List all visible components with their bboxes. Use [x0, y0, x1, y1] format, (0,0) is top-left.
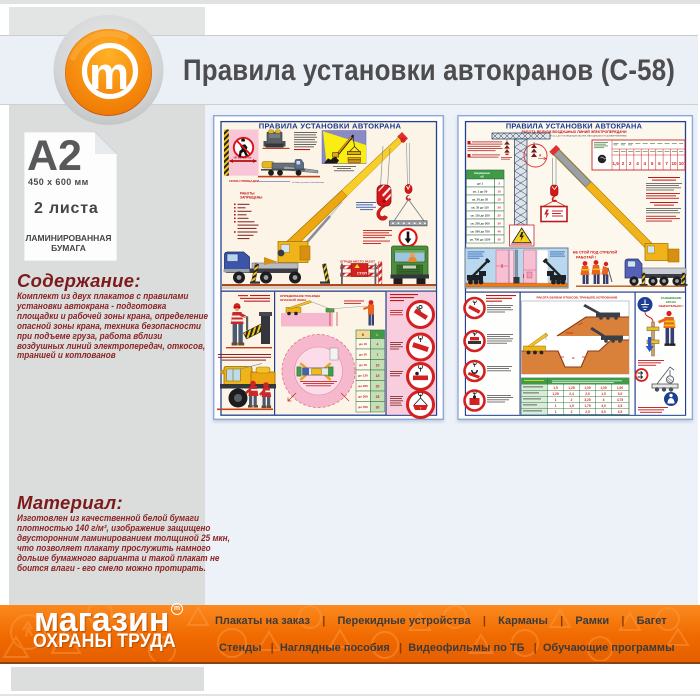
svg-text:до 120: до 120: [358, 374, 368, 378]
svg-text:ЗАПРЕЩЕНЫ: ЗАПРЕЩЕНЫ: [240, 196, 262, 200]
svg-text:1,00: 1,00: [600, 386, 606, 390]
svg-text:2,4: 2,4: [569, 392, 574, 396]
svg-text:1,25: 1,25: [552, 392, 558, 396]
svg-text:2: 2: [571, 410, 573, 414]
svg-text:2,5: 2,5: [585, 410, 590, 414]
svg-text:1,5: 1,5: [553, 386, 558, 390]
svg-text:1: 1: [555, 398, 557, 402]
svg-text:6: 6: [658, 161, 661, 166]
svg-text:3,5: 3,5: [618, 404, 623, 408]
svg-text:7: 7: [377, 353, 379, 357]
svg-text:св. 1 до 20: св. 1 до 20: [473, 189, 488, 193]
svg-text:кВ: кВ: [480, 175, 483, 179]
svg-text:3,5: 3,5: [618, 410, 623, 414]
svg-text:ПРАВИЛА УСТАНОВКИ АВТОКРАНА: ПРАВИЛА УСТАНОВКИ АВТОКРАНА: [259, 122, 402, 131]
svg-text:1: 1: [555, 410, 557, 414]
svg-text:до 70: до 70: [359, 363, 367, 367]
svg-text:РАБОТА ВБЛИЗИ ОТКОСОВ, ТРАНШЕЙ: РАБОТА ВБЛИЗИ ОТКОСОВ, ТРАНШЕЙ, КОТЛОВАН…: [537, 296, 619, 300]
svg-text:25: 25: [376, 395, 380, 399]
svg-text:НЕ МЕНЕЕ 1 м: НЕ МЕНЕЕ 1 м: [234, 157, 252, 160]
svg-text:55: 55: [498, 237, 502, 241]
svg-text:2: 2: [571, 398, 573, 402]
svg-text:20: 20: [498, 205, 502, 209]
svg-text:до 1: до 1: [477, 181, 483, 185]
svg-text:1,5: 1,5: [569, 404, 574, 408]
svg-text:УКЛОН ПЛОЩАДКИ: УКЛОН ПЛОЩАДКИ: [229, 179, 260, 183]
svg-text:10: 10: [498, 189, 502, 193]
svg-text:30: 30: [498, 221, 502, 225]
svg-text:3,0: 3,0: [601, 410, 606, 414]
svg-text:1,5: 1,5: [601, 392, 606, 396]
svg-text:св. 750 до 1150: св. 750 до 1150: [470, 237, 491, 241]
svg-text:4: 4: [603, 398, 605, 402]
svg-text:2: 2: [622, 161, 625, 166]
svg-text:25: 25: [498, 213, 502, 217]
svg-text:1,25: 1,25: [568, 386, 574, 390]
svg-text:ОГРАДИ МЕСТО РАБОТ: ОГРАДИ МЕСТО РАБОТ: [340, 260, 375, 264]
svg-text:15: 15: [498, 197, 502, 201]
svg-text:1,75: 1,75: [584, 404, 590, 408]
svg-text:3,0: 3,0: [618, 392, 623, 396]
svg-text:ОПАСНОЙ ЗОНЫ: ОПАСНОЙ ЗОНЫ: [280, 298, 306, 302]
svg-text:40: 40: [498, 229, 502, 233]
svg-text:2,0: 2,0: [585, 392, 590, 396]
svg-text:4: 4: [636, 161, 639, 166]
svg-text:св. 110 до 220: св. 110 до 220: [470, 213, 489, 217]
svg-text:3,0: 3,0: [601, 404, 606, 408]
svg-text:до 450: до 450: [358, 405, 368, 409]
svg-text:4: 4: [377, 343, 379, 347]
svg-text:до 300: до 300: [358, 395, 368, 399]
svg-text:РАБОТАЙ !: РАБОТАЙ !: [576, 256, 596, 260]
svg-text:2: 2: [629, 161, 632, 166]
svg-text:НЕ СТОЙ ПОД СТРЕЛОЙ: НЕ СТОЙ ПОД СТРЕЛОЙ: [573, 251, 618, 255]
svg-text:1,00: 1,00: [584, 386, 590, 390]
svg-text:до 20: до 20: [359, 353, 367, 357]
svg-text:СТОП: СТОП: [357, 272, 367, 276]
svg-text:10: 10: [679, 161, 685, 166]
svg-text:до 200: до 200: [358, 384, 368, 388]
svg-text:ОБЯЗАТЕЛЬНО !: ОБЯЗАТЕЛЬНО !: [659, 304, 684, 308]
svg-text:4: 4: [644, 161, 647, 166]
svg-text:св. 35 до 110: св. 35 до 110: [471, 205, 489, 209]
svg-text:1: 1: [555, 404, 557, 408]
svg-text:30: 30: [376, 406, 380, 410]
svg-text:?: ?: [419, 407, 421, 411]
svg-text:1,00: 1,00: [617, 386, 623, 390]
svg-text:5: 5: [651, 161, 654, 166]
svg-text:3,25: 3,25: [584, 398, 590, 402]
svg-text:20: 20: [376, 385, 380, 389]
svg-text:10: 10: [671, 161, 677, 166]
svg-text:св. 500 до 750: св. 500 до 750: [470, 229, 490, 233]
svg-text:св. 220 до 500: св. 220 до 500: [470, 221, 490, 225]
svg-text:15: 15: [376, 374, 380, 378]
svg-text:m: m: [89, 48, 129, 99]
svg-text:не более установл. изготовител: не более установл. изготовителем: [292, 182, 325, 184]
svg-text:до 10: до 10: [359, 342, 367, 346]
svg-text:Напряжение: Напряжение: [474, 171, 490, 175]
svg-text:1,5: 1,5: [612, 161, 619, 166]
svg-text:10: 10: [376, 364, 380, 368]
svg-text:7: 7: [665, 161, 668, 166]
svg-text:4,75: 4,75: [617, 398, 623, 402]
svg-text:св. 20 до 35: св. 20 до 35: [472, 197, 489, 201]
